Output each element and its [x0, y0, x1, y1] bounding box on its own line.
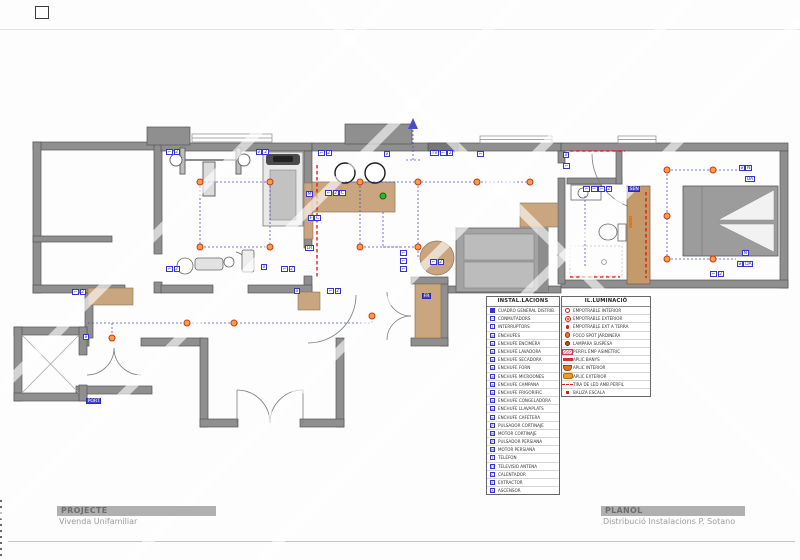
wardrobe-light	[629, 216, 632, 228]
legend-row: EMPOTRABLE INTERIOR	[562, 307, 650, 314]
pulsador-persiana-icon: P	[490, 439, 496, 444]
legend-row-label: PERFIL EMP ASIMETRIC	[573, 349, 620, 354]
legend-row: ⌀ENCHUFES	[487, 331, 559, 339]
telefon-icon: T	[490, 455, 496, 460]
cuadro-general-icon	[487, 308, 498, 313]
ascensor-icon: A	[490, 488, 496, 493]
legend-row: APLIC EXTERIOR	[562, 372, 650, 380]
calentador-icon: C	[490, 472, 496, 477]
aplic-exterior-icon	[562, 373, 573, 379]
legend-row-label: PULSADOR CORTINAJE	[498, 423, 544, 428]
enchufe-forn-icon: ⌀	[487, 365, 498, 370]
legend-row: ⌀ENCHUFE LLAVAPLATS	[487, 404, 559, 412]
lampara-suspesa-icon	[565, 341, 571, 347]
legend-row-label: INTERRUPTORS	[498, 324, 530, 329]
perfil-asimetric-icon	[562, 349, 573, 355]
project-value: Vivenda Unifamiliar	[57, 516, 216, 526]
pulsador-cortinaje-icon: P	[487, 423, 498, 428]
tv-antena-icon: TV	[490, 464, 496, 469]
ascensor-icon: A	[487, 488, 498, 493]
legend-row-label: ENCHUFE FRIGORIFIC	[498, 390, 542, 395]
pulsador-cortinaje-icon: P	[490, 423, 496, 428]
legend-row: PPULSADOR PERSIANA	[487, 437, 559, 445]
lobby-door-arc	[87, 348, 114, 375]
legend-row-label: EXTRACTOR	[498, 480, 523, 485]
conmutador-icon: ⌐	[487, 316, 498, 321]
legend-installations-title: INSTAL.LACIONS	[487, 297, 559, 307]
enchufe-lavadora-icon: ⌀	[490, 349, 496, 354]
enchufe-llavaplats-icon: ⌀	[487, 406, 498, 411]
aplic-interior-icon	[563, 365, 572, 371]
interruptor-icon: I	[487, 324, 498, 329]
legend-row: IINTERRUPTORS	[487, 322, 559, 330]
enchufe-congeladora-icon: ⌀	[490, 398, 496, 403]
enchufe-secadora-icon: ⌀	[490, 357, 496, 362]
legend-row-label: ENCHUFE ENCIMERA	[498, 341, 540, 346]
legend-row-label: EMPOTRABLE INTERIOR	[573, 308, 621, 313]
enchufe-frigorific-icon: ⌀	[490, 390, 496, 395]
enchufe-lavadora-icon: ⌀	[487, 349, 498, 354]
baliza-icon	[562, 391, 573, 394]
legend-row-label: APLIC BANYS	[573, 357, 600, 362]
legend-row: ⌀ENCHUFE LAVADORA	[487, 347, 559, 355]
legend-row-label: CALENTADOR	[498, 472, 526, 477]
extractor-icon: E	[487, 480, 498, 485]
legend-row: CUADRO GENERAL DISTRIB.	[487, 307, 559, 314]
legend-row-label: APLIC INTERIOR	[573, 365, 605, 370]
telefon-icon: T	[487, 455, 498, 460]
legend-row-label: TELEFON	[498, 455, 517, 460]
legend-row-label: APLIC EXTERIOR	[573, 374, 606, 379]
enchufe-llavaplats-icon: ⌀	[490, 406, 496, 411]
motor-persiana-icon: M	[490, 447, 496, 452]
tira-led-icon	[562, 384, 573, 385]
motor-persiana-icon: M	[487, 447, 498, 452]
foco-spot-icon	[565, 332, 571, 338]
legend-row-label: ENCHUFE SECADORA	[498, 357, 542, 362]
legend-row-label: ENCHUFE LAVADORA	[498, 349, 541, 354]
project-label: PROJECTE	[57, 506, 216, 516]
enchufe-cafetera-icon: ⌀	[487, 415, 498, 420]
legend-row: PERFIL EMP ASIMETRIC	[562, 347, 650, 355]
legend-row-label: ENCHUFE CAFETERA	[498, 415, 540, 420]
closet	[415, 284, 441, 338]
legend-installations-rows: CUADRO GENERAL DISTRIB.⌐CONMUTADORSIINTE…	[487, 307, 559, 494]
legend-row: EMPOTRABLE EXTERIOR	[562, 314, 650, 322]
perfil-asimetric-icon	[562, 349, 573, 355]
legend-row: ⌀ENCHUFE SECADORA	[487, 355, 559, 363]
legend-row-label: PULSADOR PERSIANA	[498, 439, 542, 444]
enchufe-microones-icon: ⌀	[490, 374, 496, 379]
legend-row: ⌀ENCHUFE FORN	[487, 363, 559, 371]
legend-row: EMPOTRABLE EXT A TERRA	[562, 322, 650, 330]
legend-row: ⌀ENCHUFE FRIGORIFIC	[487, 388, 559, 396]
legend-row-label: ENCHUFE FORN	[498, 365, 530, 370]
direction-arrow-icon	[408, 118, 418, 129]
planol-label: PLANOL	[601, 506, 745, 516]
legend-row: BALIZA ESCALA	[562, 388, 650, 396]
enchufe-microones-icon: ⌀	[487, 374, 498, 379]
legend-row-label: LAMPARA SUSPESA	[573, 341, 612, 346]
legend-row: ⌀ENCHUFE CONGELADORA	[487, 396, 559, 404]
legend-row: ⌀ENCHUFE CAFETERA	[487, 412, 559, 420]
aplic-banys-icon	[563, 358, 573, 361]
legend-row: APLIC INTERIOR	[562, 363, 650, 371]
motor-cortinaje-icon: M	[487, 431, 498, 436]
legend-lighting: IL.LUMINACIÓ EMPOTRABLE INTERIOREMPOTRAB…	[561, 296, 651, 397]
conmutador-icon: ⌐	[490, 316, 496, 321]
enchufe-encimera-icon: ⌀	[490, 341, 496, 346]
legend-row-label: CUADRO GENERAL DISTRIB.	[498, 308, 555, 313]
aplic-interior-icon	[562, 365, 573, 371]
foco-spot-icon	[562, 332, 573, 338]
legend-row-label: ENCHUFE MICROONES	[498, 374, 544, 379]
enchufe-icon: ⌀	[487, 333, 498, 338]
empotrable-exterior-icon	[565, 316, 571, 322]
title-block-planol: PLANOL Distribució Instalacions P. Sotan…	[601, 506, 745, 526]
tira-led-icon	[562, 384, 573, 385]
legend-row-label: MOTOR CORTINAJE	[498, 431, 537, 436]
legend-row-label: ENCHUFES	[498, 333, 520, 338]
empotrable-interior-icon	[565, 308, 570, 313]
legend-row: FOCO SPOT JARDINERA	[562, 331, 650, 339]
legend-row: EEXTRACTOR	[487, 478, 559, 486]
legend-row-label: FOCO SPOT JARDINERA	[573, 333, 620, 338]
enchufe-congeladora-icon: ⌀	[487, 398, 498, 403]
legend-row: APLIC BANYS	[562, 355, 650, 363]
legend-row: MMOTOR PERSIANA	[487, 445, 559, 453]
empotrable-exterior-icon	[562, 316, 573, 322]
legend-row-label: CONMUTADORS	[498, 316, 530, 321]
cuadro-general-icon	[490, 308, 496, 313]
enchufe-secadora-icon: ⌀	[487, 357, 498, 362]
legend-row-label: EMPOTRABLE EXTERIOR	[573, 316, 622, 321]
bed	[683, 186, 778, 256]
windows	[192, 134, 656, 143]
planol-value: Distribució Instalacions P. Sotano	[601, 516, 745, 526]
pulsador-persiana-icon: P	[487, 439, 498, 444]
legend-row: TIRA DE LED AMB PERFIL	[562, 380, 650, 388]
aplic-exterior-icon	[563, 373, 573, 379]
closet-door-arc	[387, 316, 411, 340]
entrance-door-arc	[237, 390, 270, 423]
legend-lighting-title: IL.LUMINACIÓ	[562, 297, 650, 307]
enchufe-cafetera-icon: ⌀	[490, 415, 496, 420]
interruptor-icon: I	[490, 324, 496, 329]
legend-row: AASCENSOR	[487, 486, 559, 494]
empotrable-interior-icon	[562, 308, 573, 313]
title-block-project: PROJECTE Vivenda Unifamiliar	[57, 506, 216, 526]
lampara-suspesa-icon	[562, 341, 573, 347]
enchufe-campana-icon: ⌀	[487, 382, 498, 387]
extractor-icon: E	[490, 480, 496, 485]
empotrable-terra-icon	[566, 325, 569, 328]
legend-installations: INSTAL.LACIONS CUADRO GENERAL DISTRIB.⌐C…	[486, 296, 560, 495]
empotrable-terra-icon	[562, 325, 573, 328]
calentador-icon: C	[487, 472, 498, 477]
legend-row: MMOTOR CORTINAJE	[487, 429, 559, 437]
legend-row-label: TIRA DE LED AMB PERFIL	[573, 382, 624, 387]
legend-row-label: EMPOTRABLE EXT A TERRA	[573, 324, 628, 329]
legend-row-label: MOTOR PERSIANA	[498, 447, 535, 452]
aplic-banys-icon	[562, 358, 573, 361]
legend-lighting-rows: EMPOTRABLE INTERIOREMPOTRABLE EXTERIOREM…	[562, 307, 650, 396]
enchufe-campana-icon: ⌀	[490, 382, 496, 387]
tv-antena-icon: TV	[487, 464, 498, 469]
legend-row-label: ENCHUFE LLAVAPLATS	[498, 406, 544, 411]
enchufe-frigorific-icon: ⌀	[487, 390, 498, 395]
legend-row: ⌀ENCHUFE ENCIMERA	[487, 339, 559, 347]
floor-plan	[0, 0, 800, 560]
enchufe-icon: ⌀	[490, 333, 496, 338]
lobby-door-arc	[114, 348, 141, 375]
legend-row-label: ENCHUFE CAMPANA	[498, 382, 539, 387]
chair	[365, 163, 385, 183]
legend-row: PPULSADOR CORTINAJE	[487, 421, 559, 429]
legend-row: LAMPARA SUSPESA	[562, 339, 650, 347]
motor-cortinaje-icon: M	[490, 431, 496, 436]
legend-row-label: BALIZA ESCALA	[573, 390, 605, 395]
legend-row: ⌐CONMUTADORS	[487, 314, 559, 322]
legend-row: ⌀ENCHUFE MICROONES	[487, 372, 559, 380]
enchufe-encimera-icon: ⌀	[487, 341, 498, 346]
legend-row: TVTELEVISIO ANTENA	[487, 462, 559, 470]
legend-row: TTELEFON	[487, 453, 559, 461]
legend-row-label: ASCENSOR	[498, 488, 521, 493]
legend-row-label: ENCHUFE CONGELADORA	[498, 398, 551, 403]
baliza-icon	[566, 391, 569, 394]
drawing-sheet: ⌐2⌀2⌐2⌀⌐2⌐2⌀TV⌐2⌐M⌐2CFCLR⌐⌐⌐⌐2⌐⌐⌐2SEN⌀⌐⌀…	[0, 0, 800, 560]
cabinet	[298, 292, 320, 310]
legend-row: CCALENTADOR	[487, 470, 559, 478]
legend-row: ⌀ENCHUFE CAMPANA	[487, 380, 559, 388]
legend-row-label: TELEVISIO ANTENA	[498, 464, 537, 469]
enchufe-forn-icon: ⌀	[490, 365, 496, 370]
